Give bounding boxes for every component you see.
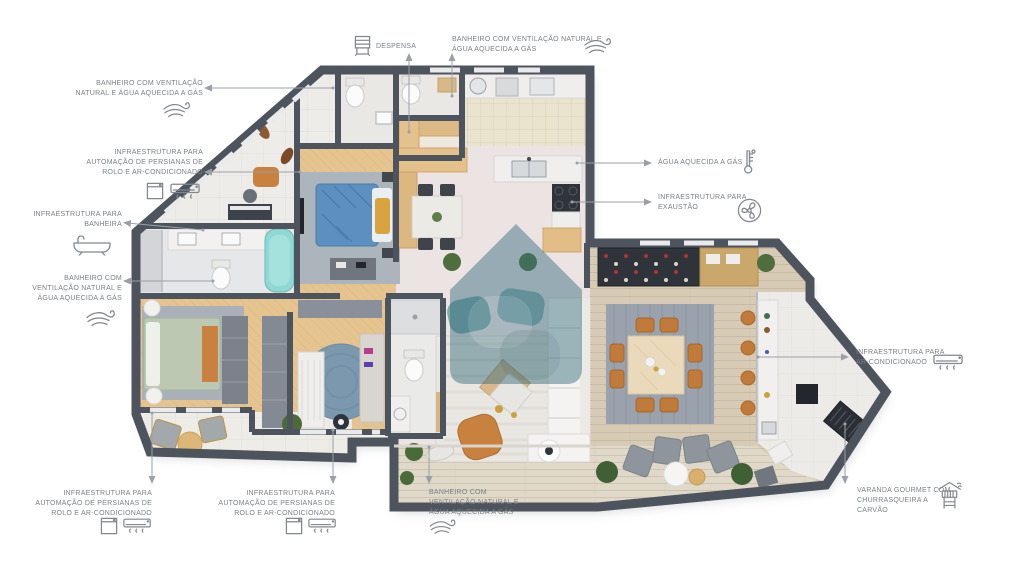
dresser xyxy=(330,258,376,280)
annotation-ac-right: INFRAESTRUTURA PARA AR-CONDICIONADO xyxy=(856,348,945,368)
toilet xyxy=(346,85,364,107)
annotation-text: ROLO E AR-CONDICIONADO xyxy=(40,168,203,178)
annotation-bathroom-top: BANHEIRO COM VENTILAÇÃO NATURAL E ÁGUA A… xyxy=(452,35,602,55)
annotation-text: BANHEIRO COM VENTILAÇÃO NATURAL E xyxy=(452,35,602,45)
coffee-station xyxy=(700,248,758,286)
annotation-blinds-bottom-mid: INFRAESTRUTURA PARA AUTOMAÇÃO DE PERSIAN… xyxy=(213,489,335,519)
balcony-chair xyxy=(198,416,227,444)
annotation-text: AR-CONDICIONADO xyxy=(856,358,945,368)
toilet xyxy=(402,84,420,104)
annotation-gas-water: ÁGUA AQUECIDA A GÁS xyxy=(658,158,743,168)
annotation-text: ÁGUA AQUECIDA A GÁS xyxy=(658,158,743,168)
annotation-text: NATURAL E ÁGUA AQUECIDA A GÁS xyxy=(40,89,203,99)
annotation-text: ÁGUA AQUECIDA A GÁS xyxy=(429,508,519,518)
annotation-bathroom-left-bottom: BANHEIRO COM VENTILAÇÃO NATURAL E ÁGUA A… xyxy=(0,274,122,304)
round-table xyxy=(664,462,688,486)
annotation-blinds-left: INFRAESTRUTURA PARA AUTOMAÇÃO DE PERSIAN… xyxy=(40,148,203,178)
annotation-text: AUTOMAÇÃO DE PERSIANAS DE xyxy=(30,499,152,509)
annotation-text: BANHEIRO COM xyxy=(0,274,122,284)
annotation-text: BANHEIRO COM VENTILAÇÃO xyxy=(40,79,203,89)
plant xyxy=(757,254,775,272)
annotation-text: DESPENSA xyxy=(376,42,416,52)
ac-unit-icon xyxy=(933,354,964,370)
cabinet xyxy=(298,300,382,318)
plant xyxy=(596,461,618,483)
annotation-text: BANHEIRA xyxy=(0,220,122,230)
exhaust-fan-icon xyxy=(736,197,763,224)
annotation-text: AUTOMAÇÃO DE PERSIANAS DE xyxy=(40,158,203,168)
washer xyxy=(470,78,486,94)
annotation-exhaust: INFRAESTRUTURA PARA EXAUSTÃO xyxy=(658,193,747,213)
wind-icon xyxy=(583,36,613,56)
toilet xyxy=(405,359,423,381)
sideboard xyxy=(543,228,581,252)
roller-blind-icon xyxy=(285,517,304,536)
ac-unit-icon xyxy=(170,183,201,199)
ac-unit-icon xyxy=(123,518,152,533)
bathtub-icon xyxy=(72,234,112,256)
ac-unit-icon xyxy=(308,518,337,533)
vanity xyxy=(390,396,410,432)
annotation-text: AUTOMAÇÃO DE PERSIANAS DE xyxy=(213,499,335,509)
plant xyxy=(443,253,461,271)
thermometer-icon xyxy=(740,149,756,175)
cooktop xyxy=(796,384,818,404)
annotation-text: INFRAESTRUTURA PARA xyxy=(30,489,152,499)
annotation-blinds-bottom-left: INFRAESTRUTURA PARA AUTOMAÇÃO DE PERSIAN… xyxy=(30,489,152,519)
pillows xyxy=(146,322,160,386)
roller-blind-icon xyxy=(100,517,119,536)
annotation-text: EXAUSTÃO xyxy=(658,203,747,213)
master-bedroom xyxy=(298,172,400,284)
annotation-text: INFRAESTRUTURA PARA xyxy=(213,489,335,499)
annotation-text: INFRAESTRUTURA PARA xyxy=(0,210,122,220)
annotation-bathroom-bottom: BANHEIRO COM VENTILAÇÃO NATURAL E ÁGUA A… xyxy=(429,488,519,518)
yellow-cushion xyxy=(375,198,390,234)
orange-throw xyxy=(202,326,218,382)
annotation-text: INFRAESTRUTURA PARA xyxy=(658,193,747,203)
annotation-text: VENTILAÇÃO NATURAL E xyxy=(429,498,519,508)
annotation-bathtub: INFRAESTRUTURA PARA BANHEIRA xyxy=(0,210,122,230)
desk xyxy=(360,334,384,422)
laundry-sink xyxy=(530,78,554,95)
annotation-text: BANHEIRO COM xyxy=(429,488,519,498)
sink xyxy=(376,112,392,124)
shower xyxy=(140,230,162,292)
sink xyxy=(762,422,776,434)
annotation-bathroom-left-top: BANHEIRO COM VENTILAÇÃO NATURAL E ÁGUA A… xyxy=(40,79,203,99)
roller-blind-icon xyxy=(146,182,165,201)
plant xyxy=(400,471,414,485)
round-table xyxy=(689,469,705,485)
annotation-text: VENTILAÇÃO NATURAL E xyxy=(0,284,122,294)
wind-icon xyxy=(162,100,192,120)
vanity xyxy=(438,78,456,92)
bar-counter xyxy=(758,300,778,440)
annotation-text: ÁGUA AQUECIDA A GÁS xyxy=(0,294,122,304)
toilet xyxy=(212,267,230,289)
annotation-text: INFRAESTRUTURA PARA xyxy=(856,348,945,358)
pantry-cabinet-icon xyxy=(354,35,371,56)
stove xyxy=(496,78,518,96)
floor-plan-page: DESPENSA BANHEIRO COM VENTILAÇÃO NATURAL… xyxy=(0,0,1024,576)
wind-icon xyxy=(427,518,459,536)
annotation-text: ÁGUA AQUECIDA A GÁS xyxy=(452,45,602,55)
annotation-despensa: DESPENSA xyxy=(376,42,416,52)
plant xyxy=(731,463,753,485)
wind-icon xyxy=(85,308,117,329)
charcoal-grill-icon xyxy=(936,481,963,510)
annotation-text: INFRAESTRUTURA PARA xyxy=(40,148,203,158)
plant xyxy=(432,212,442,222)
